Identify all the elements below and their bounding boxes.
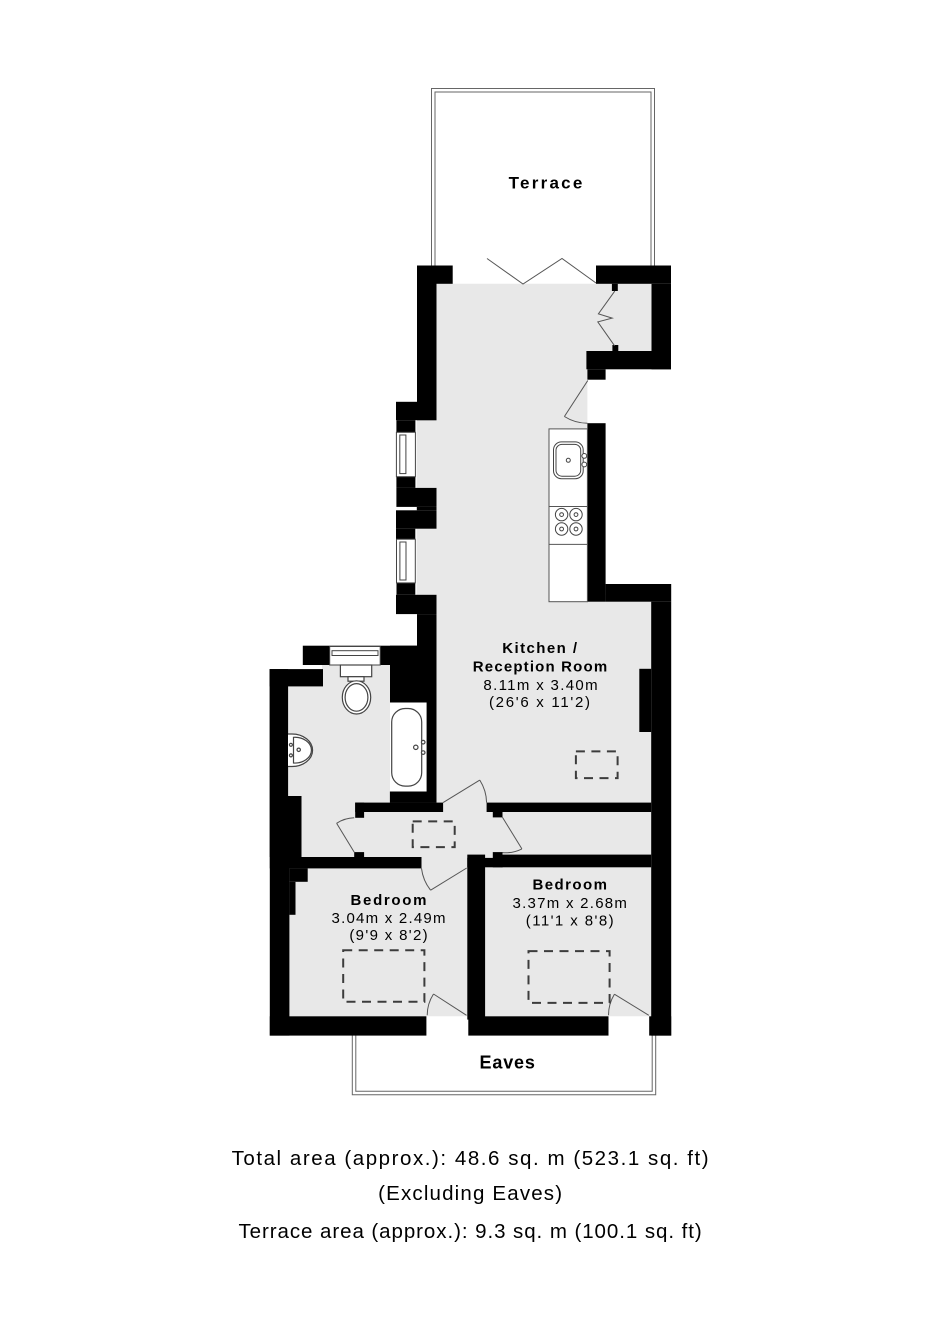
svg-text:(9'9 x 8'2): (9'9 x 8'2) xyxy=(349,927,427,944)
svg-text:Kitchen /: Kitchen / xyxy=(502,640,578,657)
svg-text:Eaves: Eaves xyxy=(480,1052,535,1072)
svg-text:Total area (approx.): 48.6 sq.: Total area (approx.): 48.6 sq. m (523.1 … xyxy=(232,1147,709,1170)
svg-text:Reception Room: Reception Room xyxy=(473,659,607,676)
svg-text:3.37m x 2.68m: 3.37m x 2.68m xyxy=(513,895,627,912)
svg-text:(Excluding Eaves): (Excluding Eaves) xyxy=(378,1182,562,1205)
svg-text:(11'1 x 8'8): (11'1 x 8'8) xyxy=(526,912,614,929)
svg-text:3.04m x 2.49m: 3.04m x 2.49m xyxy=(332,910,446,927)
svg-text:Terrace area (approx.): 9.3 sq: Terrace area (approx.): 9.3 sq. m (100.1… xyxy=(239,1220,702,1243)
svg-text:8.11m x 3.40m: 8.11m x 3.40m xyxy=(483,677,597,694)
